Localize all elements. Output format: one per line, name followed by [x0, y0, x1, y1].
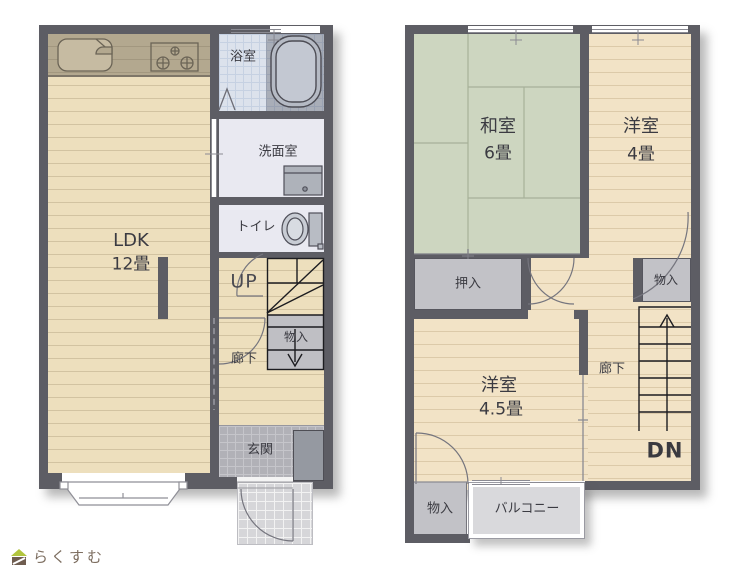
western-room45-label: 洋室 [481, 377, 517, 395]
bathroom-label: 浴室 [230, 51, 256, 64]
washitsu-window-gap [468, 26, 573, 33]
ldk-area-label: 12畳 [112, 257, 151, 274]
western-room45-area-label: 4.5畳 [479, 402, 523, 419]
washitsu-yoshitsu-wall [580, 34, 589, 258]
room45-right-wall-stub [579, 319, 588, 375]
oshiire-label: 押入 [455, 278, 481, 291]
oshiire-right-wall [522, 258, 531, 310]
entrance-label: 玄関 [247, 444, 273, 457]
japanese-room-label: 和室 [480, 118, 516, 136]
storage-lower-bottom-wall [405, 534, 470, 543]
house-icon [10, 548, 28, 566]
balcony-label: バルコニー [495, 503, 560, 516]
western-room4-label: 洋室 [623, 118, 659, 136]
floorplan-canvas: LDK 12畳 浴室 洗面室 トイレ UP 廊下 物入 玄関 和室 6畳 洋室 … [0, 0, 743, 575]
hallway1-label: 廊下 [231, 353, 257, 366]
stair-storage-label: 物入 [284, 331, 308, 343]
ldk-wash-thin-wall [211, 119, 217, 197]
western-room4-area-label: 4畳 [627, 147, 655, 164]
japanese-room-area-label: 6畳 [484, 146, 512, 163]
kitchen-counter [48, 34, 210, 77]
stairs-down-label: DN [646, 441, 683, 462]
bath-window-gap [270, 26, 320, 33]
ldk-hall-wall-upper [210, 197, 219, 258]
brand-logo: らくすむ [10, 546, 105, 567]
bath-wash-wall [219, 111, 324, 119]
ldk-floor [48, 34, 210, 473]
bay-window-gap [62, 473, 185, 489]
floor1-plan [39, 25, 333, 489]
ldk-label: LDK [113, 232, 149, 250]
storage-lower-label: 物入 [427, 503, 453, 516]
shoe-cabinet [293, 430, 324, 481]
bathtub-zone [266, 34, 324, 111]
yoshitsu4-window-gap [592, 26, 688, 33]
ldk-hall-dashed-opening [213, 318, 215, 415]
room45-top-wall-left [405, 310, 528, 319]
toilet-label: トイレ [236, 221, 275, 234]
hallway2-label: 廊下 [599, 363, 625, 376]
room45-top-wall-right [574, 310, 588, 319]
washroom-label: 洗面室 [258, 146, 297, 159]
brand-name: らくすむ [33, 546, 105, 567]
storage-upper-left-wall [633, 258, 642, 302]
entrance-porch [237, 482, 313, 545]
wash-toilet-wall [219, 197, 324, 205]
ldk-hall-wall-lower [210, 410, 219, 425]
floor2-plan [405, 25, 700, 490]
storage-upper-label: 物入 [654, 274, 678, 286]
stairs-up-label: UP [230, 273, 257, 292]
ldk-hall-wall-mid [210, 300, 219, 318]
ldk-partition-wall [158, 257, 168, 319]
